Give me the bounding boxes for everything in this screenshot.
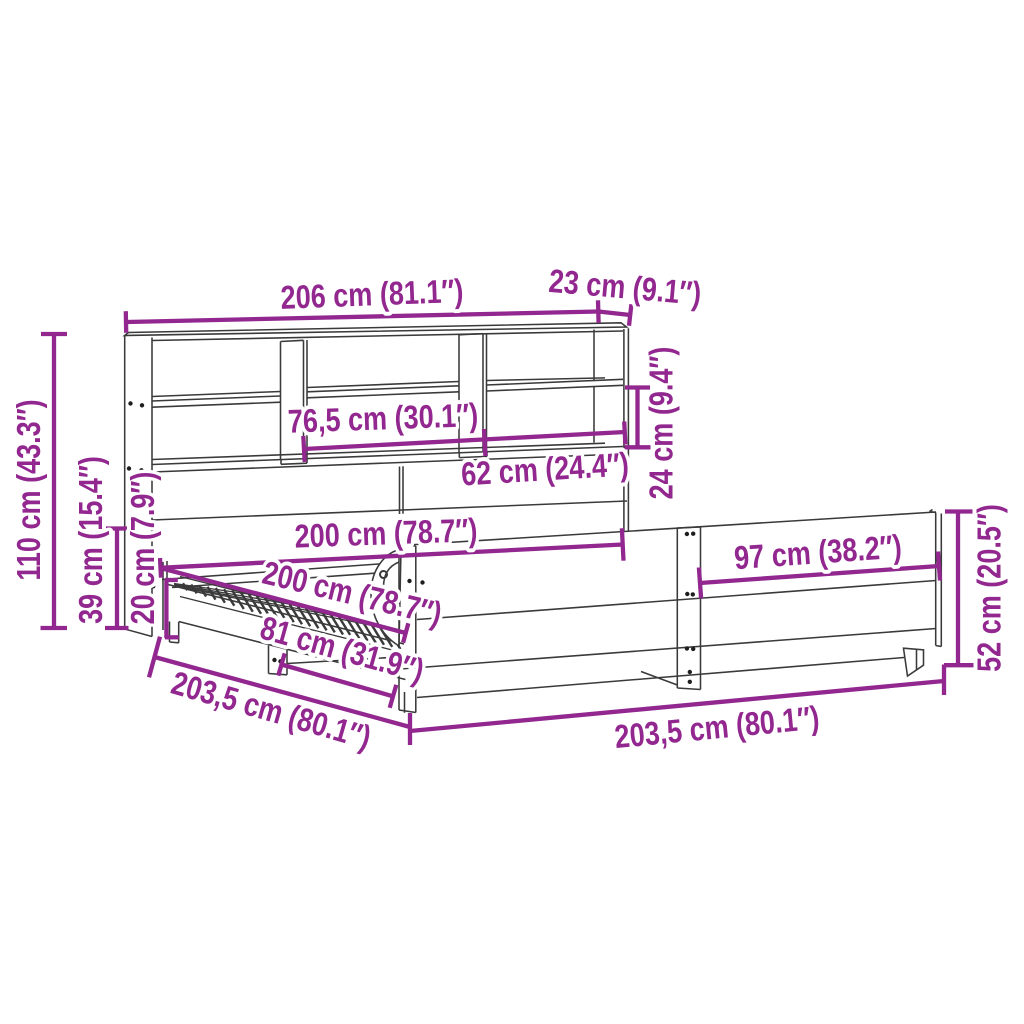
svg-text:20 cm (7.9″): 20 cm (7.9″)	[125, 472, 161, 625]
svg-text:200 cm (78.7″): 200 cm (78.7″)	[294, 513, 478, 555]
svg-text:110 cm (43.3″): 110 cm (43.3″)	[11, 399, 47, 580]
svg-text:24 cm (9.4″): 24 cm (9.4″)	[644, 347, 680, 500]
svg-text:206 cm (81.1″): 206 cm (81.1″)	[280, 273, 464, 316]
svg-text:39 cm (15.4″): 39 cm (15.4″)	[73, 456, 109, 624]
svg-text:76,5 cm (30.1″): 76,5 cm (30.1″)	[287, 398, 478, 441]
svg-text:52 cm (20.5″): 52 cm (20.5″)	[972, 504, 1008, 672]
